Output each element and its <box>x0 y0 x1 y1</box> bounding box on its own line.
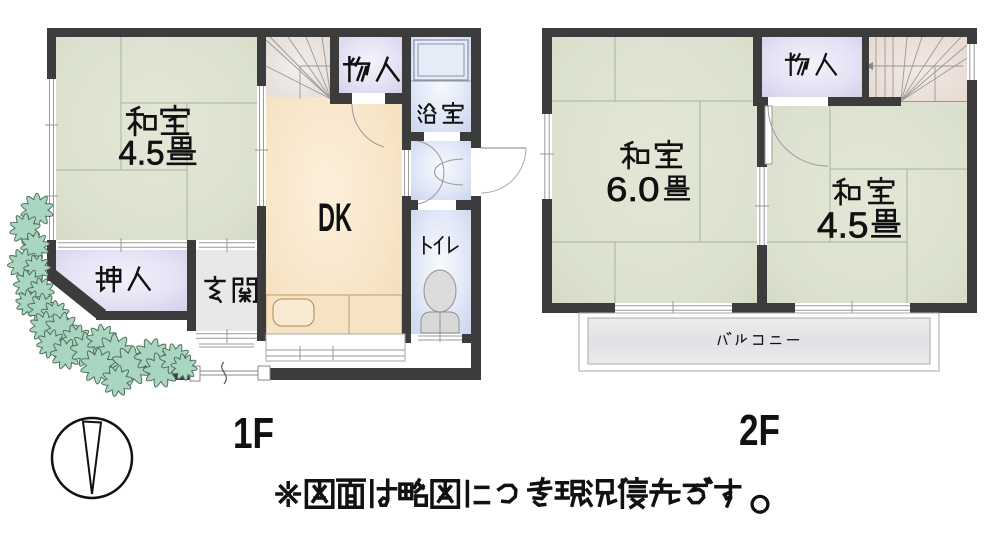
svg-text:4.5: 4.5 <box>817 205 869 246</box>
svg-text:1F: 1F <box>233 409 274 458</box>
svg-text:2F: 2F <box>739 406 780 455</box>
svg-text:DK: DK <box>318 196 352 240</box>
svg-text:6.0: 6.0 <box>606 171 660 209</box>
svg-text:4.5: 4.5 <box>119 135 165 173</box>
